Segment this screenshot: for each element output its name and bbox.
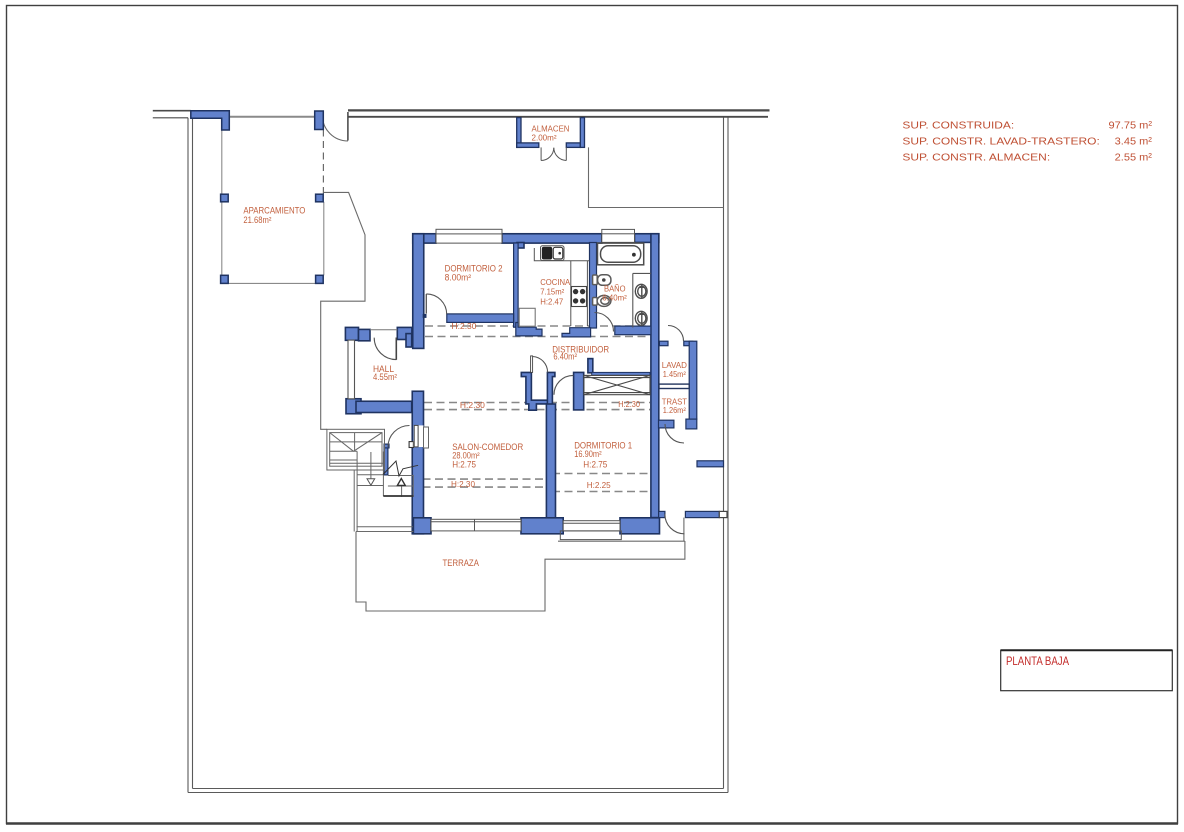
svg-text:4.55m²: 4.55m² — [373, 372, 397, 382]
svg-text:H:2.30: H:2.30 — [618, 399, 640, 409]
svg-text:SUP. CONSTR. LAVAD-TRASTERO:: SUP. CONSTR. LAVAD-TRASTERO: — [902, 136, 1099, 148]
svg-text:2.00m²: 2.00m² — [532, 132, 557, 142]
svg-text:21.68m²: 21.68m² — [243, 215, 271, 225]
svg-text:SUP. CONSTRUIDA:: SUP. CONSTRUIDA: — [902, 119, 1014, 131]
svg-text:H:2.47: H:2.47 — [540, 296, 563, 306]
svg-text:H:2.30: H:2.30 — [452, 321, 477, 331]
svg-text:6.40m²: 6.40m² — [602, 293, 627, 303]
svg-text:1.26m²: 1.26m² — [663, 405, 686, 415]
svg-text:TERRAZA: TERRAZA — [443, 558, 480, 568]
svg-text:16.90m²: 16.90m² — [574, 449, 601, 459]
svg-text:H:2.75: H:2.75 — [452, 460, 476, 470]
svg-text:1.45m²: 1.45m² — [663, 369, 686, 379]
svg-text:7.15m²: 7.15m² — [540, 287, 564, 297]
svg-text:H:2.25: H:2.25 — [587, 480, 611, 490]
svg-text:H:2.30: H:2.30 — [460, 400, 485, 410]
svg-text:3.45 m²: 3.45 m² — [1115, 136, 1153, 148]
svg-text:97.75 m²: 97.75 m² — [1109, 119, 1153, 131]
svg-text:H:2.75: H:2.75 — [583, 460, 607, 470]
svg-text:8.00m²: 8.00m² — [445, 273, 472, 283]
svg-text:PLANTA BAJA: PLANTA BAJA — [1006, 654, 1069, 668]
svg-text:SUP. CONSTR. ALMACEN:: SUP. CONSTR. ALMACEN: — [902, 152, 1050, 164]
svg-text:H:2.30: H:2.30 — [451, 479, 475, 489]
svg-text:2.55 m²: 2.55 m² — [1115, 152, 1153, 164]
svg-text:6.40m²: 6.40m² — [553, 352, 577, 362]
